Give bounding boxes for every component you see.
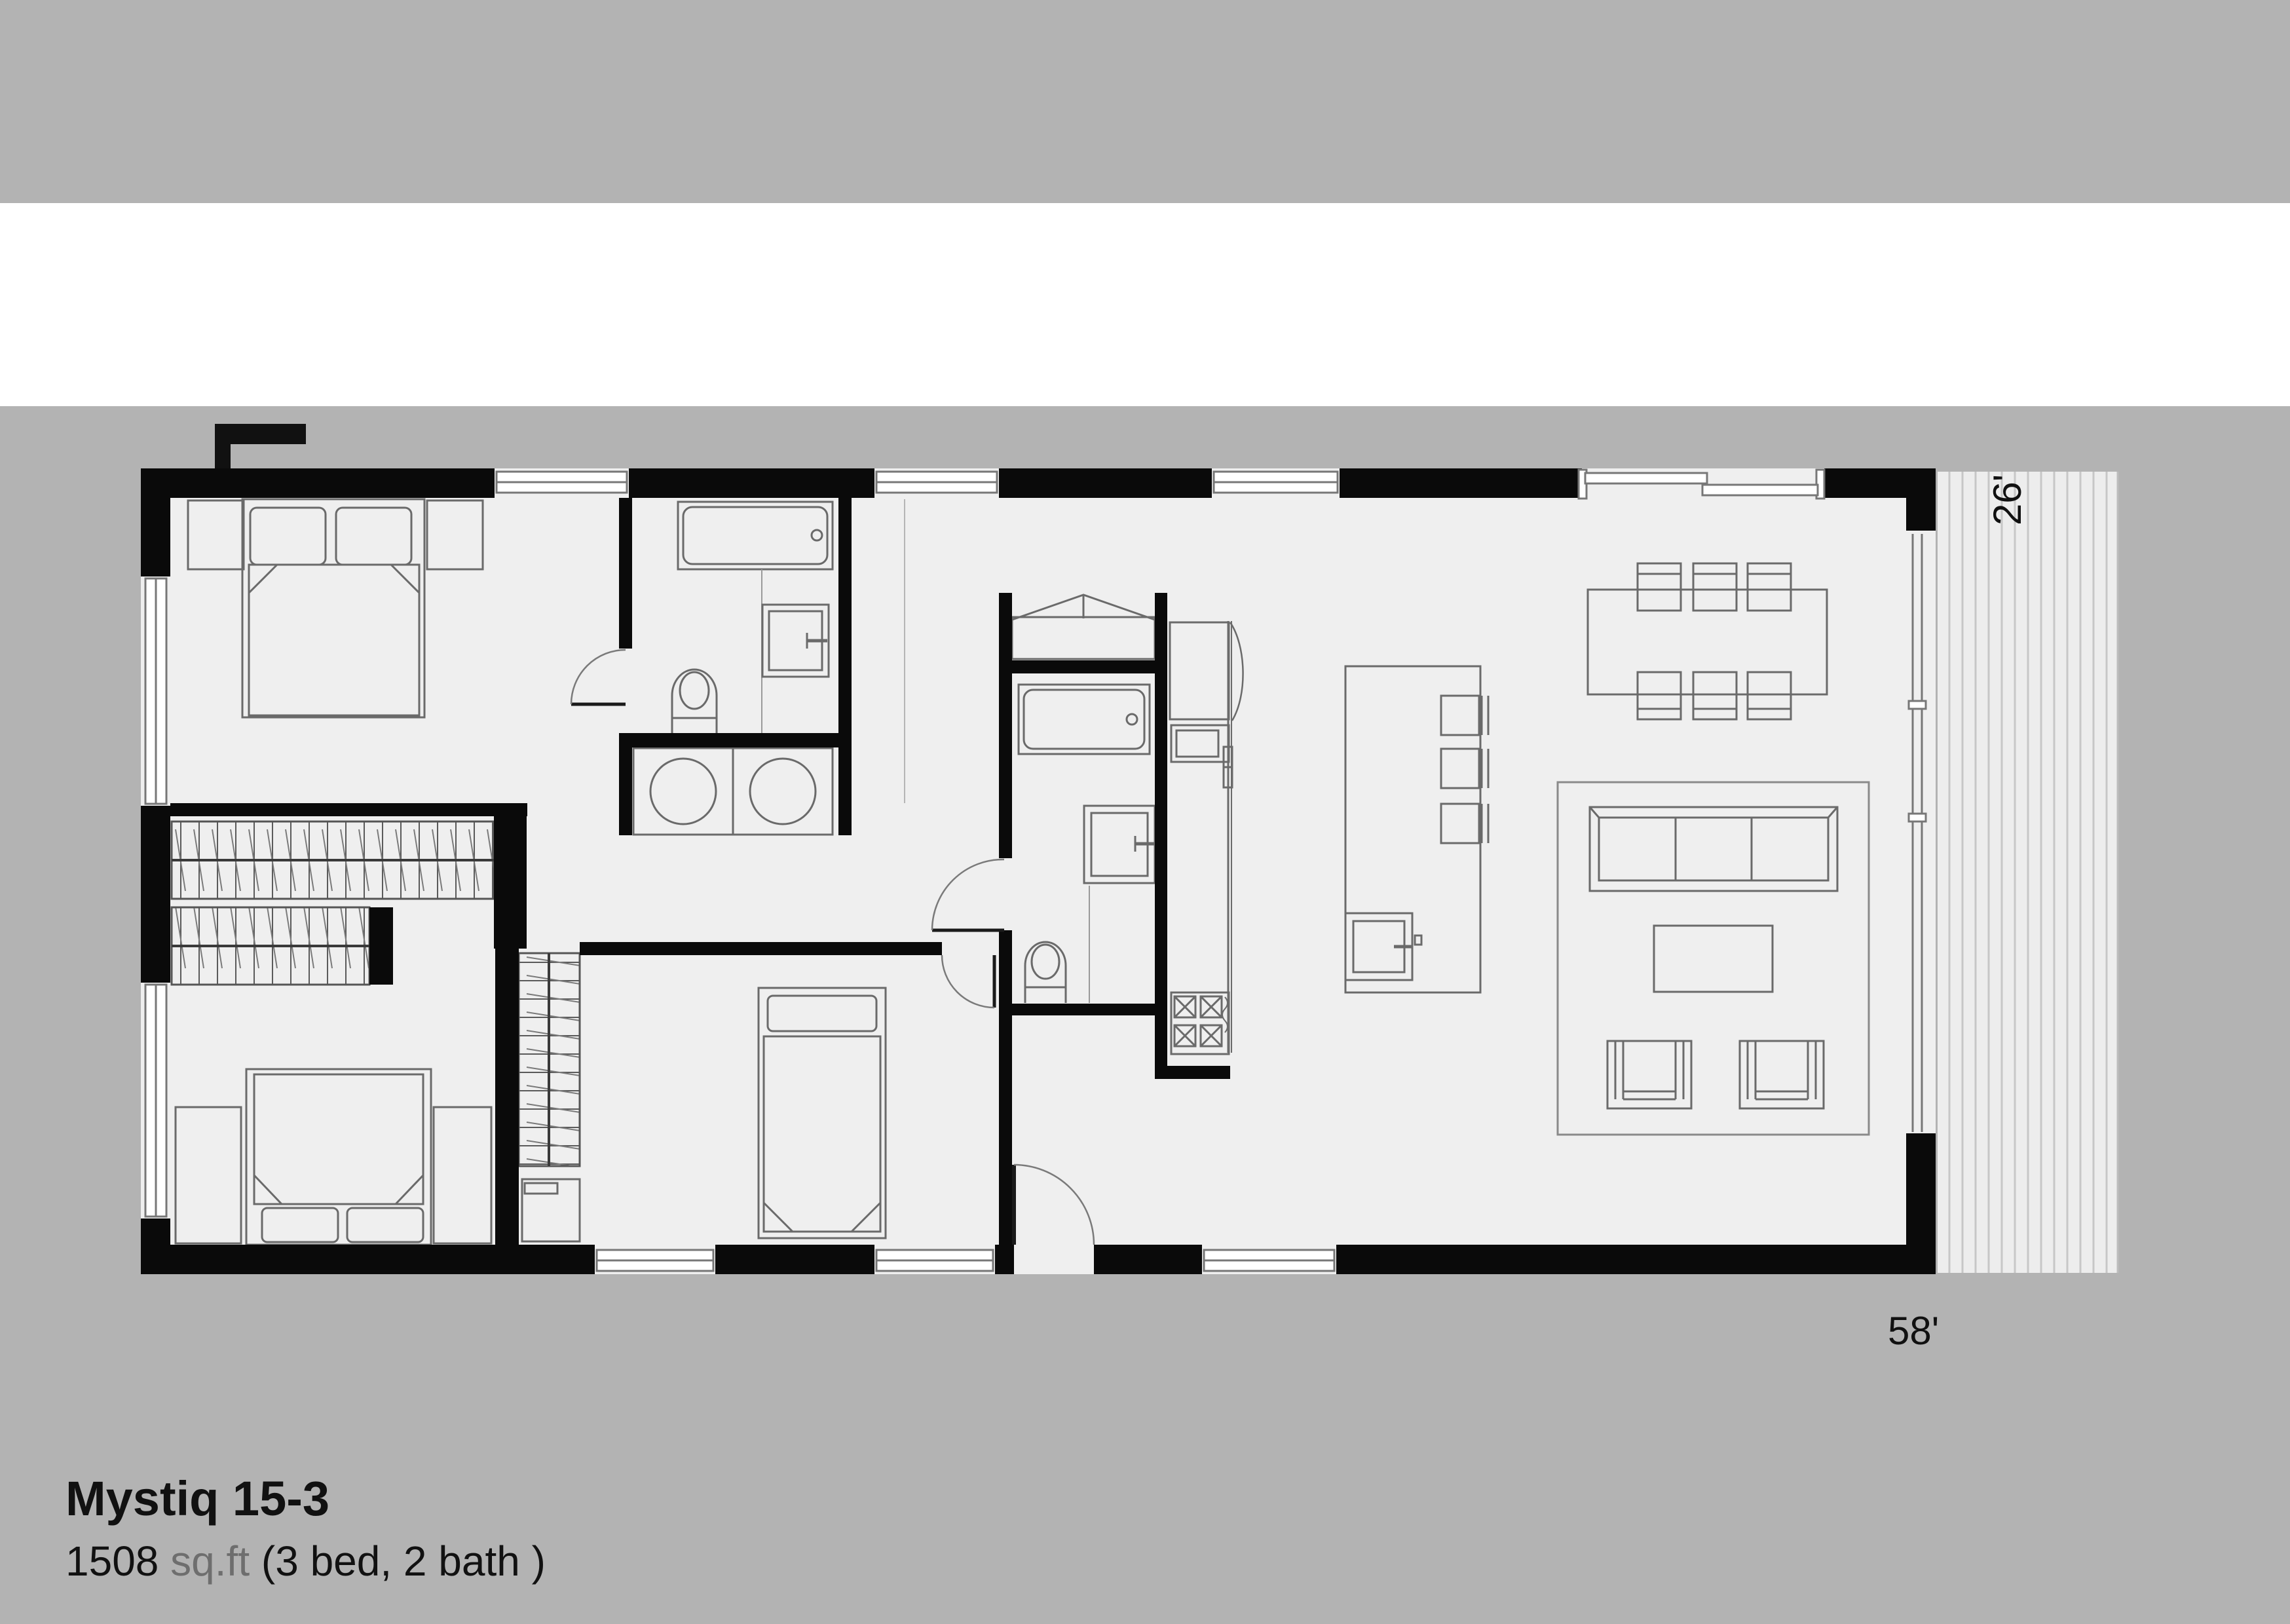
plan-rooms: (3 bed, 2 bath ) xyxy=(261,1538,546,1585)
window xyxy=(1214,472,1338,493)
width-dimension-label: 58' xyxy=(1888,1309,1939,1353)
window xyxy=(497,472,627,493)
window xyxy=(1204,1250,1334,1271)
page-canvas: mantle xyxy=(0,0,2290,1624)
closet-band-1 xyxy=(172,821,494,899)
closet-band-2 xyxy=(172,907,369,985)
closet-reach-in xyxy=(519,953,580,1166)
window xyxy=(145,985,166,1217)
island-sink xyxy=(1345,913,1421,980)
depth-dimension-label: 26' xyxy=(1985,474,2029,525)
deck xyxy=(1938,472,2118,1273)
plan-area-value: 1508 xyxy=(66,1538,159,1585)
window xyxy=(876,472,997,493)
floor-plan-svg: 26' 58' xyxy=(0,0,2290,1624)
window xyxy=(145,578,166,804)
plan-specs: 1508 sq.ft (3 bed, 2 bath ) xyxy=(66,1536,546,1587)
plan-name: Mystiq 15-3 xyxy=(66,1471,546,1526)
plan-caption: Mystiq 15-3 1508 sq.ft (3 bed, 2 bath ) xyxy=(66,1471,546,1587)
plan-area-unit: sq.ft xyxy=(170,1538,250,1585)
window xyxy=(597,1250,713,1271)
window xyxy=(876,1250,993,1271)
